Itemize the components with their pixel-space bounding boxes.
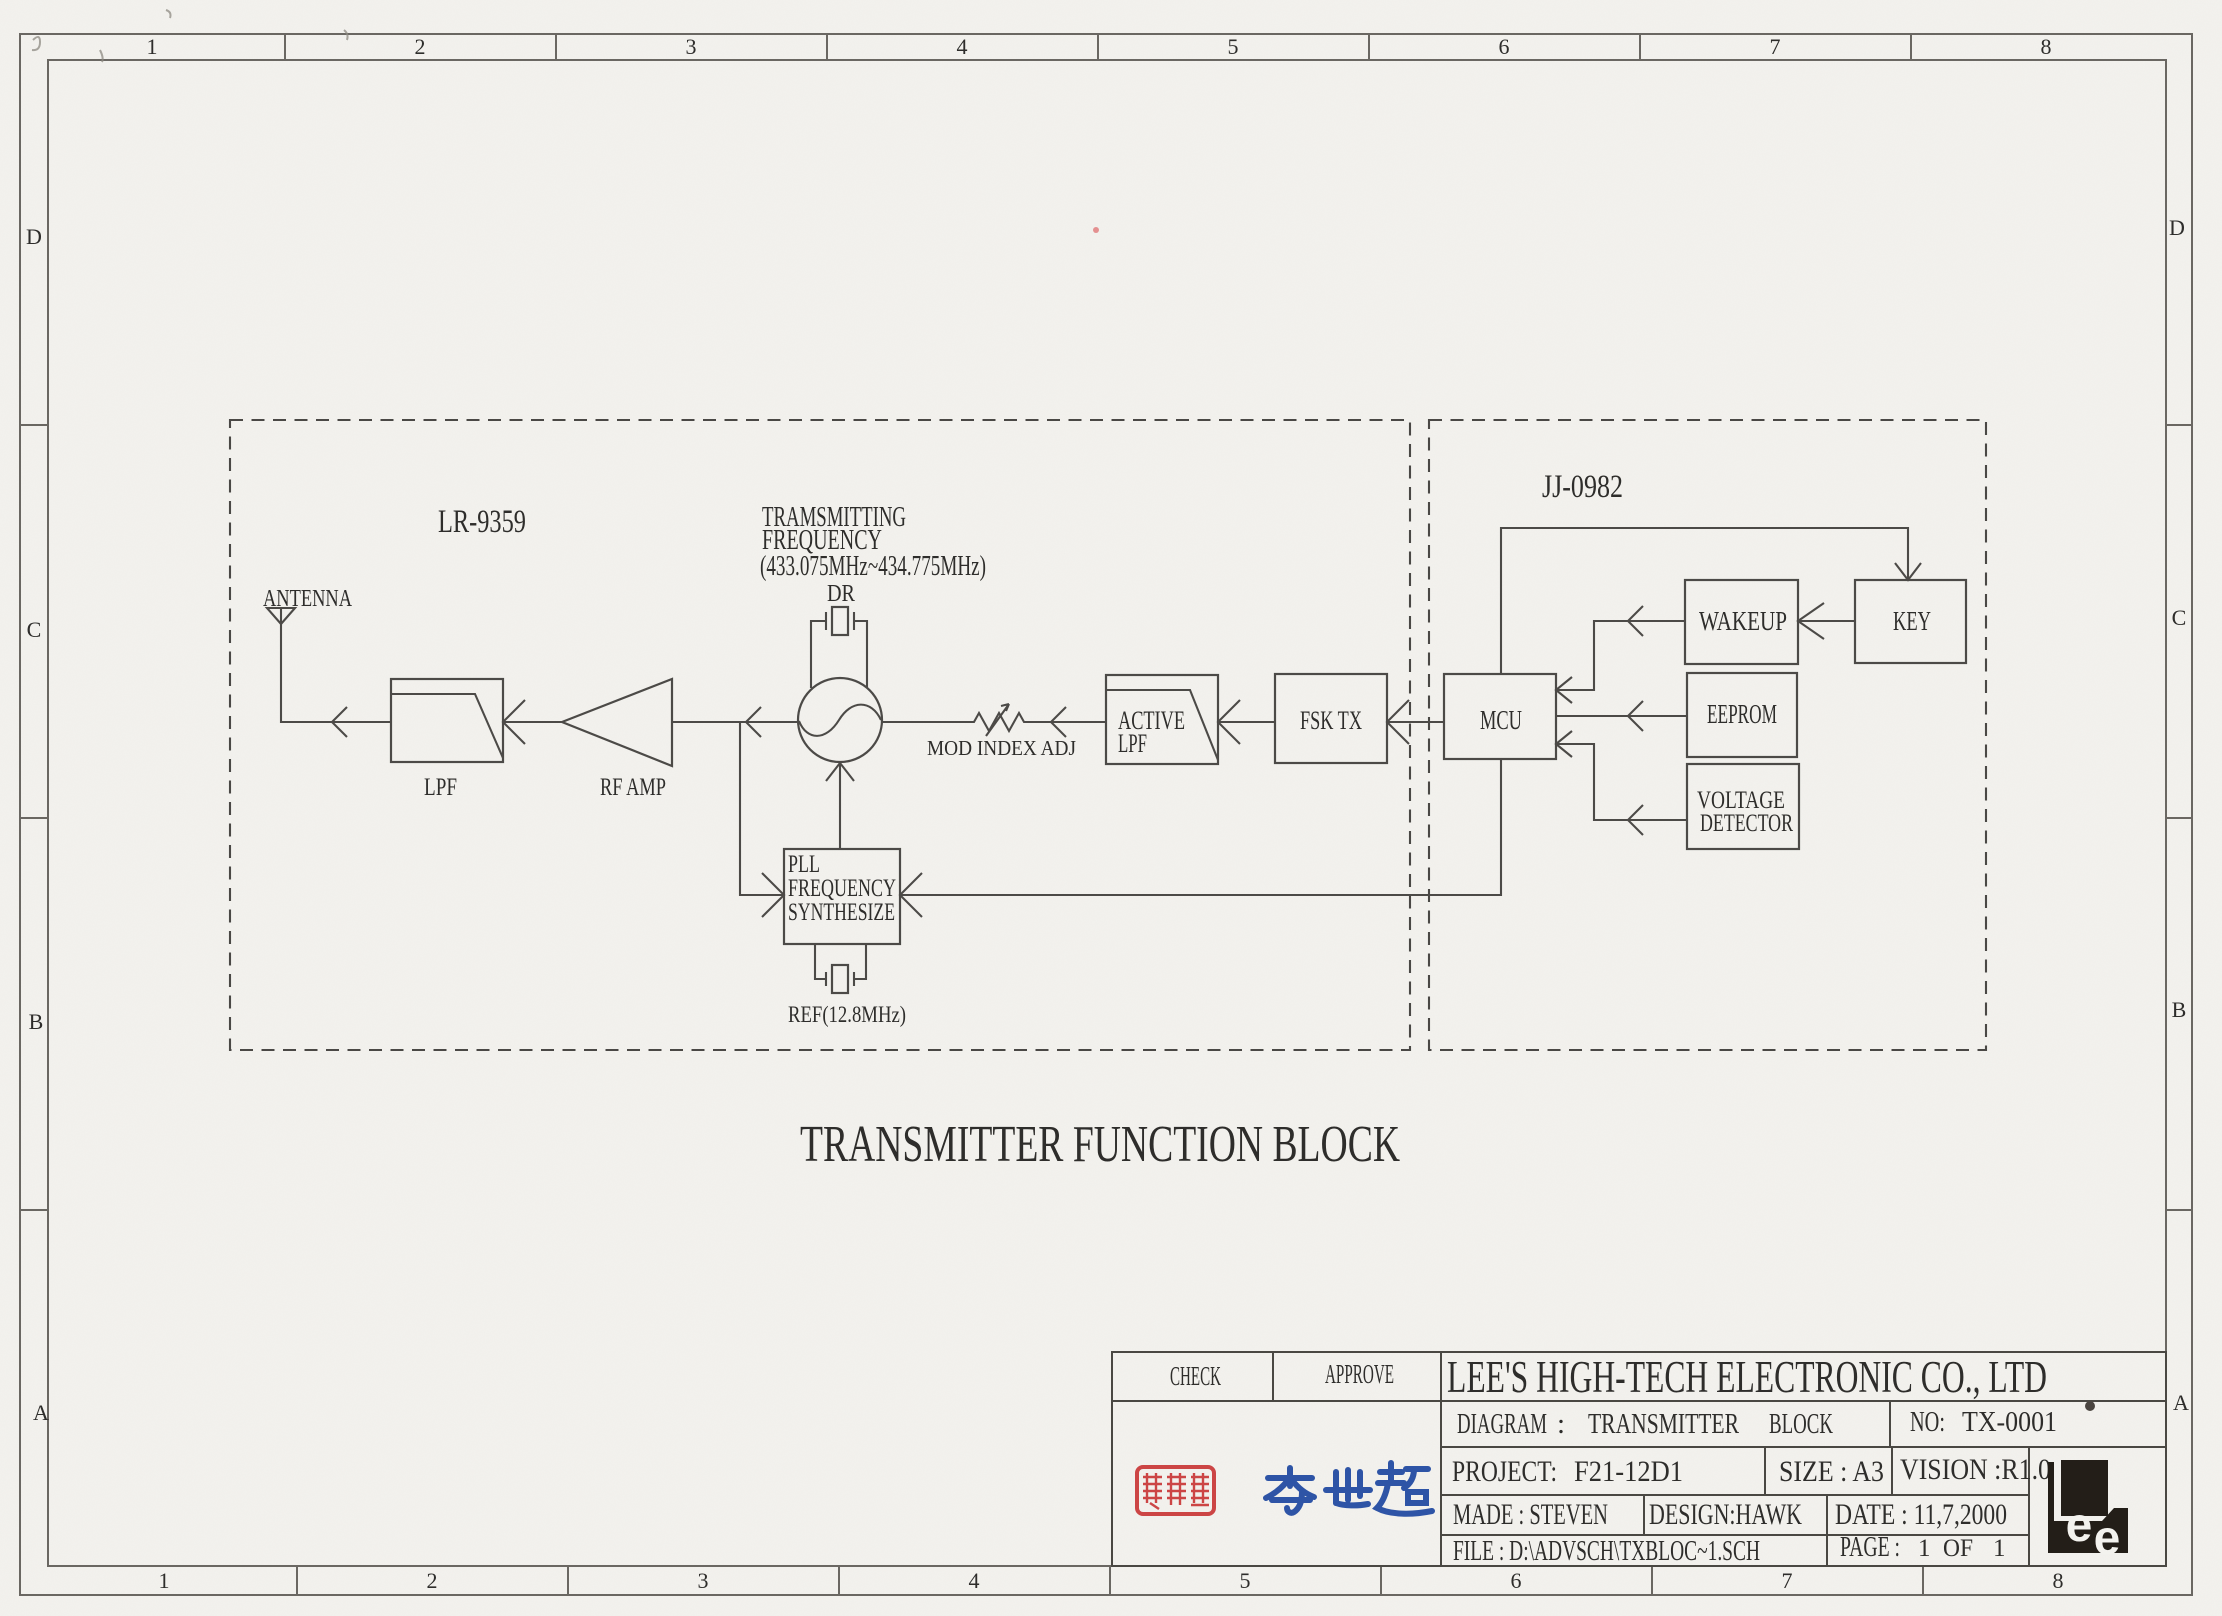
- svg-text:SIZE : A3: SIZE : A3: [1779, 1455, 1884, 1488]
- svg-text:B: B: [29, 1009, 44, 1034]
- svg-text:CHECK: CHECK: [1170, 1361, 1221, 1391]
- svg-text:C: C: [2172, 605, 2187, 630]
- svg-text:C: C: [27, 617, 42, 642]
- svg-text:2: 2: [427, 1568, 438, 1593]
- svg-text:LEE'S HIGH-TECH ELECTRONIC CO.: LEE'S HIGH-TECH ELECTRONIC CO., LTD: [1447, 1352, 2047, 1402]
- svg-text:7: 7: [1782, 1568, 1793, 1593]
- svg-text:e: e: [2066, 1499, 2093, 1552]
- svg-text:MADE : STEVEN: MADE : STEVEN: [1453, 1498, 1608, 1531]
- svg-text:1: 1: [147, 34, 158, 59]
- svg-text:4: 4: [957, 34, 968, 59]
- svg-text:NO:: NO:: [1910, 1406, 1945, 1438]
- svg-text:FSK TX: FSK TX: [1300, 706, 1362, 735]
- svg-text:KEY: KEY: [1893, 606, 1931, 636]
- svg-text:WAKEUP: WAKEUP: [1699, 606, 1787, 636]
- svg-text:3: 3: [698, 1568, 709, 1593]
- svg-text:3: 3: [686, 34, 697, 59]
- svg-text:TRANSMITTER: TRANSMITTER: [1588, 1408, 1739, 1440]
- svg-text:1: 1: [1918, 1535, 1931, 1562]
- svg-text:MCU: MCU: [1480, 705, 1522, 735]
- svg-text:e: e: [2094, 1512, 2121, 1565]
- svg-text:FREQUENCY: FREQUENCY: [788, 875, 896, 902]
- svg-text:(433.075MHz~434.775MHz): (433.075MHz~434.775MHz): [760, 551, 986, 582]
- svg-text:RF AMP: RF AMP: [600, 774, 666, 801]
- svg-text:DESIGN:HAWK: DESIGN:HAWK: [1649, 1498, 1802, 1531]
- svg-text:MOD INDEX ADJ: MOD INDEX ADJ: [927, 736, 1076, 760]
- svg-text:2: 2: [415, 34, 426, 59]
- svg-text:1: 1: [1993, 1535, 2006, 1562]
- svg-text:EEPROM: EEPROM: [1707, 699, 1777, 729]
- svg-text:APPROVE: APPROVE: [1325, 1359, 1394, 1389]
- svg-text:F21-12D1: F21-12D1: [1574, 1455, 1683, 1488]
- svg-text:PAGE :: PAGE :: [1840, 1532, 1900, 1563]
- svg-text::: :: [1557, 1408, 1565, 1440]
- svg-text:VISION :R1.0: VISION :R1.0: [1900, 1453, 2051, 1486]
- svg-text:6: 6: [1511, 1568, 1522, 1593]
- svg-text:6: 6: [1499, 34, 1510, 59]
- svg-text:DIAGRAM: DIAGRAM: [1457, 1408, 1547, 1440]
- svg-text:1: 1: [159, 1568, 170, 1593]
- svg-text:DATE : 11,7,2000: DATE : 11,7,2000: [1835, 1498, 2007, 1531]
- svg-text:FILE : D:\ADVSCH\TXBLOC~1.SCH: FILE : D:\ADVSCH\TXBLOC~1.SCH: [1453, 1536, 1760, 1567]
- svg-text:JJ-0982: JJ-0982: [1542, 469, 1623, 505]
- svg-text:B: B: [2172, 997, 2187, 1022]
- svg-text:BLOCK: BLOCK: [1769, 1408, 1833, 1440]
- svg-text:D: D: [2169, 215, 2185, 240]
- svg-text:PLL: PLL: [788, 851, 820, 878]
- svg-text:DR: DR: [827, 581, 855, 607]
- svg-text:PROJECT:: PROJECT:: [1452, 1455, 1557, 1488]
- svg-text:DETECTOR: DETECTOR: [1700, 810, 1793, 837]
- svg-text:8: 8: [2053, 1568, 2064, 1593]
- svg-text:A: A: [2173, 1390, 2189, 1415]
- svg-text:5: 5: [1228, 34, 1239, 59]
- svg-text:5: 5: [1240, 1568, 1251, 1593]
- svg-text:4: 4: [969, 1568, 980, 1593]
- svg-text:OF: OF: [1943, 1535, 1973, 1562]
- svg-text:TRANSMITTER FUNCTION BLOCK: TRANSMITTER FUNCTION BLOCK: [800, 1116, 1400, 1173]
- svg-text:8: 8: [2041, 34, 2052, 59]
- svg-text:LR-9359: LR-9359: [438, 504, 526, 540]
- svg-text:LPF: LPF: [424, 774, 457, 801]
- svg-text:D: D: [26, 224, 42, 249]
- svg-text:REF(12.8MHz): REF(12.8MHz): [788, 1002, 906, 1027]
- svg-text:SYNTHESIZE: SYNTHESIZE: [788, 899, 895, 926]
- svg-text:TX-0001: TX-0001: [1962, 1406, 2057, 1438]
- svg-text:7: 7: [1770, 34, 1781, 59]
- svg-text:A: A: [33, 1400, 49, 1425]
- svg-text:LPF: LPF: [1118, 729, 1147, 758]
